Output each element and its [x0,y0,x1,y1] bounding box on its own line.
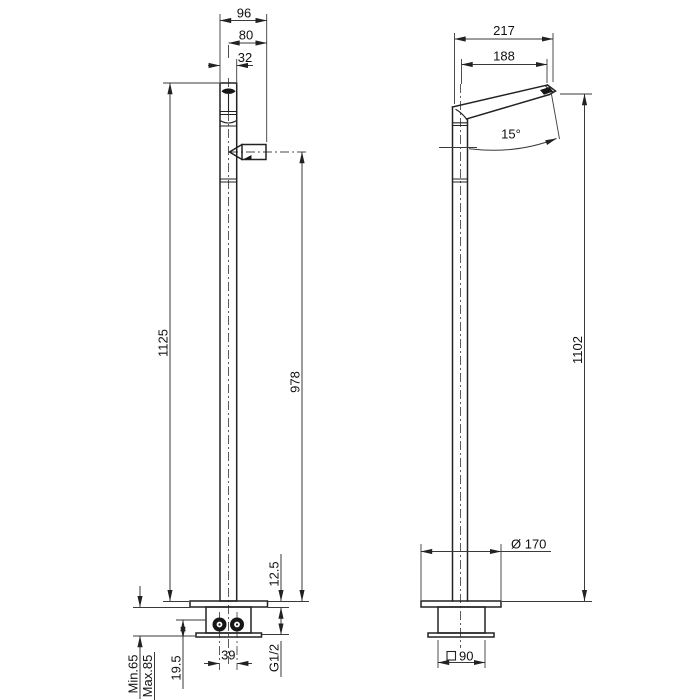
dim-inlet-depth: 19.5 [169,655,184,680]
dim-spout-offset: 80 [239,28,253,43]
dim-deck-max: Max.85 [140,655,155,698]
technical-drawing-page: 96 80 32 1125 978 12.5 G1/2 Min.65 Max [0,0,700,700]
technical-drawing: 96 80 32 1125 978 12.5 G1/2 Min.65 Max [0,0,700,700]
dim-spout-angle: 15° [501,127,521,142]
dim-rough-box-size: 90 [459,649,473,664]
dim-column-width: 32 [238,50,252,65]
dim-total-reach: 217 [493,23,515,38]
inlet-connection-right [230,618,244,632]
paper-background [0,0,700,700]
dim-side-outlet-height: 1102 [570,336,585,364]
inlet-connection-left [213,618,227,632]
dim-total-width: 96 [237,6,251,21]
dim-inlet-spacing: 39 [221,648,235,663]
dim-plate-thickness: 12.5 [267,561,282,586]
dim-base-diameter: Ø 170 [511,537,546,552]
dim-thread-size: G1/2 [267,644,282,672]
dim-total-height: 1125 [156,329,171,357]
dim-outlet-reach: 188 [493,49,515,64]
dim-deck-min: Min.65 [126,654,141,693]
dim-outlet-height: 978 [288,371,303,393]
